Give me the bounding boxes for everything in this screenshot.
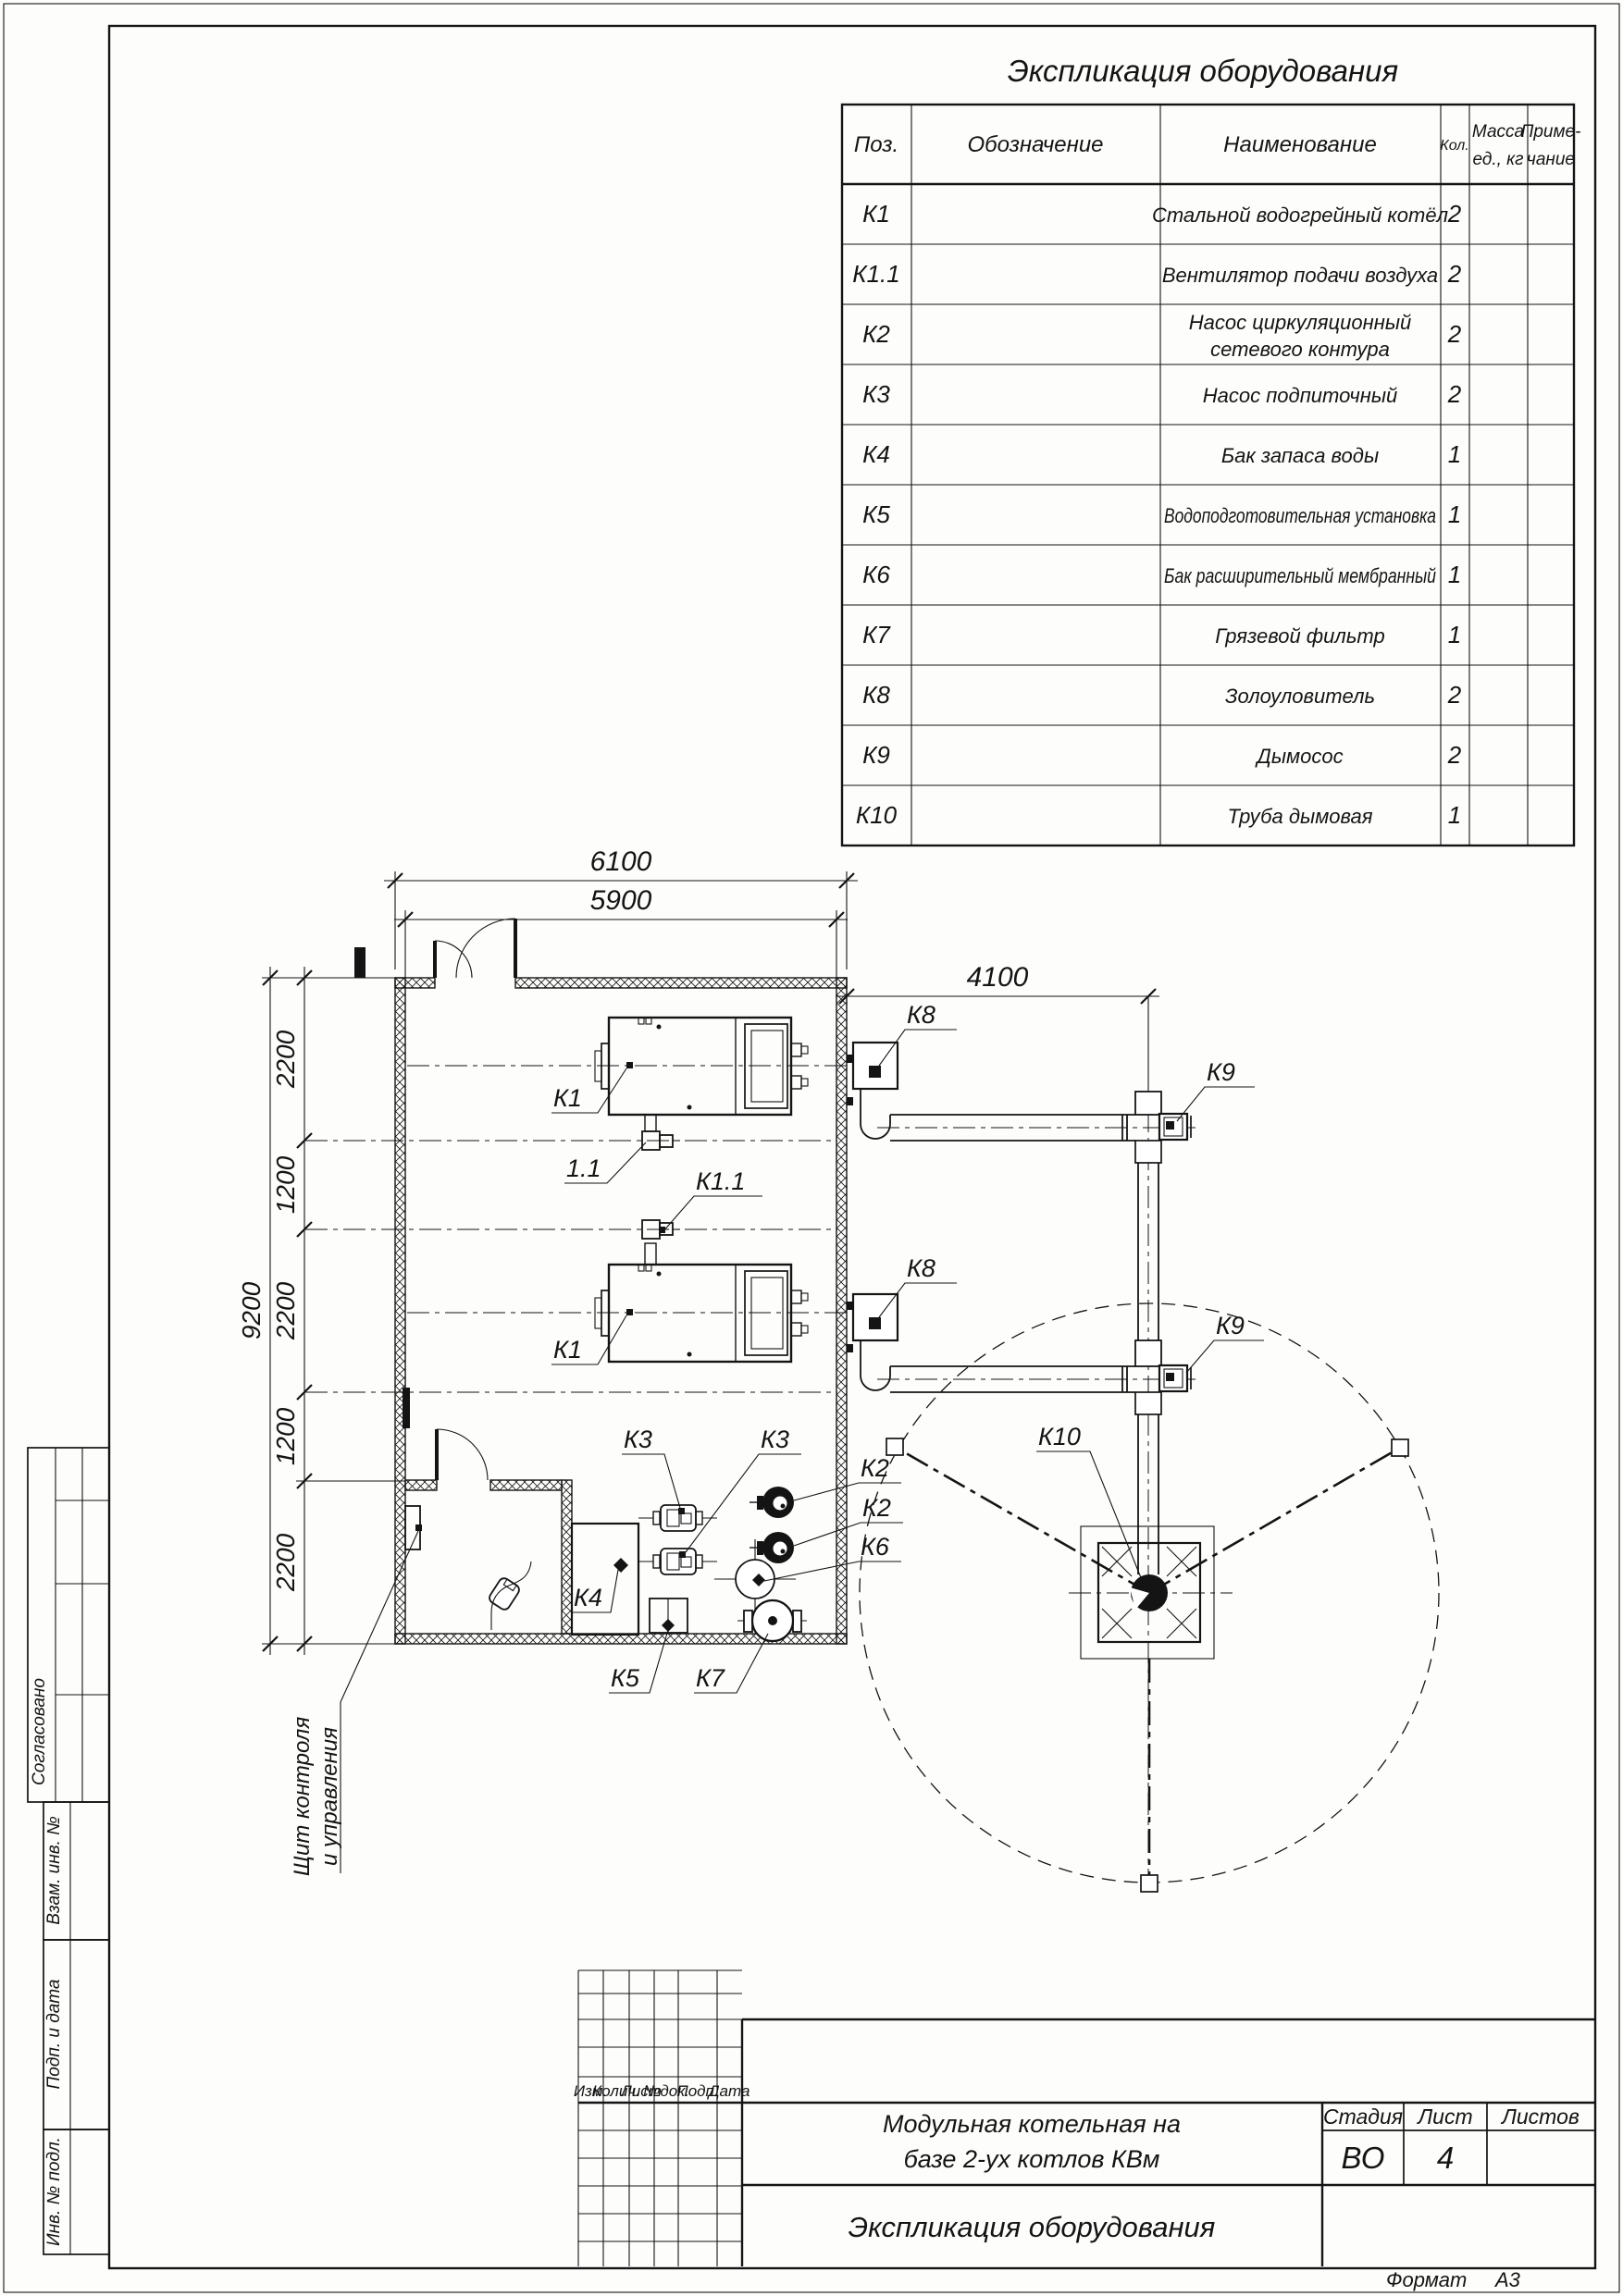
- floor-plan: Щит контроля и управления 6100 5900 4100…: [237, 846, 1439, 1892]
- col-note-2: чание: [1527, 150, 1575, 169]
- svg-text:К9: К9: [1216, 1312, 1245, 1339]
- table-row: К7Грязевой фильтр1: [862, 621, 1461, 648]
- sheets-label: Листов: [1500, 2105, 1580, 2129]
- svg-text:2: 2: [1447, 681, 1462, 709]
- left-margin-stamps: Согласовано Взам. инв. № Подп. и дата Ин…: [28, 1448, 109, 2254]
- svg-text:К8: К8: [862, 681, 890, 709]
- dim-2200-1: 2200: [271, 1030, 300, 1089]
- svg-text:1.1: 1.1: [566, 1154, 601, 1182]
- svg-text:К1: К1: [553, 1336, 582, 1364]
- format-label: Формат: [1386, 2268, 1467, 2291]
- svg-text:К9: К9: [1207, 1058, 1235, 1086]
- stage-value: ВО: [1342, 2141, 1385, 2175]
- label-k3-left: К3: [622, 1426, 680, 1508]
- svg-text:Вентилятор подачи воздуха: Вентилятор подачи воздуха: [1162, 264, 1438, 287]
- col-note-1: Приме-: [1521, 122, 1581, 142]
- agreed-stamp-label: Согласовано: [30, 1678, 49, 1785]
- control-panel-note-1: Щит контроля: [290, 1717, 315, 1876]
- svg-text:К1: К1: [553, 1084, 582, 1112]
- spec-table-title: Экспликация оборудования: [1008, 54, 1398, 88]
- svg-text:К7: К7: [862, 621, 891, 648]
- svg-text:1: 1: [1448, 561, 1461, 588]
- svg-text:2: 2: [1447, 200, 1462, 228]
- water-treatment-k5: [650, 1599, 688, 1633]
- dim-6100: 6100: [590, 846, 652, 877]
- doc-title: Экспликация оборудования: [849, 2211, 1216, 2243]
- spec-table-rows: К1Стальной водогрейный котёл2 К1.1Вентил…: [852, 200, 1462, 829]
- dim-1200-2: 1200: [271, 1407, 300, 1465]
- podp-stamp-label: Подп. и дата: [44, 1980, 64, 2090]
- col-mass-2: ед., кг: [1472, 150, 1523, 169]
- air-fan-k11-top: [642, 1115, 680, 1150]
- svg-text:2: 2: [1447, 380, 1462, 408]
- col-pos: Поз.: [854, 132, 898, 157]
- dim-2200-3: 2200: [271, 1533, 300, 1592]
- svg-text:Водоподготовительная установка: Водоподготовительная установка: [1164, 504, 1436, 527]
- label-k1-bottom: К1: [551, 1315, 626, 1364]
- svg-text:сетевого контура: сетевого контура: [1210, 338, 1390, 361]
- project-title-line2: базе 2-ух котлов КВм: [904, 2145, 1160, 2173]
- dim-4100: 4100: [967, 962, 1029, 993]
- air-fan-k11-bottom: [642, 1220, 680, 1265]
- label-k10: К10: [1036, 1423, 1144, 1585]
- dimensions: 6100 5900 4100 9200 2200 1200 2200 1200 …: [237, 846, 1159, 1655]
- format-value: А3: [1493, 2268, 1521, 2291]
- rev-data: Дата: [707, 2082, 750, 2100]
- pump-k3-top: [638, 1505, 717, 1531]
- table-row: К4Бак запаса воды1: [862, 440, 1461, 468]
- sheet-value: 4: [1437, 2141, 1454, 2175]
- inv-stamp-label: Инв. № подл.: [44, 2137, 64, 2246]
- svg-text:К8: К8: [907, 1001, 935, 1029]
- svg-text:1: 1: [1448, 801, 1461, 829]
- flue-ducts: [890, 1092, 1161, 1574]
- svg-text:К3: К3: [624, 1426, 652, 1453]
- label-k9-top: К9: [1177, 1058, 1255, 1121]
- drawing-canvas: Согласовано Взам. инв. № Подп. и дата Ин…: [0, 0, 1623, 2296]
- svg-text:К4: К4: [574, 1584, 602, 1611]
- col-designation: Обозначение: [967, 132, 1103, 157]
- svg-text:К4: К4: [862, 440, 890, 468]
- table-row: К6Бак расширительный мембранный1: [862, 561, 1461, 588]
- svg-text:К1.1: К1.1: [852, 260, 899, 288]
- svg-text:К10: К10: [1038, 1423, 1081, 1450]
- svg-text:Насос циркуляционный: Насос циркуляционный: [1189, 311, 1412, 334]
- svg-text:К6: К6: [862, 561, 890, 588]
- ash-collector-k8-top: [853, 1043, 898, 1139]
- smoke-exhauster-k9-bottom: [1159, 1365, 1191, 1391]
- svg-text:К2: К2: [861, 1454, 889, 1482]
- dim-9200: 9200: [237, 1281, 266, 1339]
- svg-text:1: 1: [1448, 500, 1461, 528]
- entrance-door: [354, 919, 515, 978]
- table-row: К1.1Вентилятор подачи воздуха2: [852, 260, 1462, 288]
- svg-text:Грязевой фильтр: Грязевой фильтр: [1215, 624, 1384, 648]
- guy-anchor: [1392, 1439, 1408, 1456]
- svg-text:К1.1: К1.1: [696, 1167, 745, 1195]
- svg-text:К1: К1: [862, 200, 890, 228]
- project-title-line1: Модульная котельная на: [883, 2110, 1181, 2138]
- svg-text:Бак расширительный мембранный: Бак расширительный мембранный: [1164, 564, 1436, 587]
- pump-k2-bottom: [750, 1532, 794, 1563]
- inner-door: [403, 1388, 488, 1480]
- svg-text:К8: К8: [907, 1254, 935, 1282]
- table-row: К10Труба дымовая1: [856, 801, 1461, 829]
- svg-text:К2: К2: [862, 320, 890, 348]
- svg-text:Дымосос: Дымосос: [1254, 745, 1343, 768]
- svg-text:2: 2: [1447, 741, 1462, 769]
- dim-1200-1: 1200: [271, 1155, 300, 1214]
- svg-text:К9: К9: [862, 741, 890, 769]
- guy-anchor: [1141, 1875, 1158, 1892]
- svg-text:К2: К2: [862, 1494, 891, 1522]
- svg-text:Насос подпиточный: Насос подпиточный: [1203, 384, 1398, 407]
- svg-text:2: 2: [1447, 260, 1462, 288]
- table-row: К5Водоподготовительная установка1: [862, 500, 1461, 528]
- sink: [488, 1562, 531, 1630]
- svg-text:К5: К5: [862, 500, 890, 528]
- label-k11: К1.1: [663, 1167, 762, 1232]
- svg-text:К6: К6: [861, 1533, 890, 1561]
- label-11: 1.1: [564, 1142, 646, 1183]
- dim-5900: 5900: [590, 885, 652, 916]
- stage-label: Стадия: [1323, 2105, 1403, 2129]
- svg-text:К5: К5: [611, 1664, 640, 1692]
- spec-table-header: Поз. Обозначение Наименование Кол. Масса…: [854, 122, 1581, 169]
- sheet-label: Лист: [1416, 2105, 1472, 2129]
- svg-text:К3: К3: [761, 1426, 789, 1453]
- svg-text:К3: К3: [862, 380, 890, 408]
- svg-text:Золоуловитель: Золоуловитель: [1225, 685, 1375, 708]
- revision-header-row: Изм. Колич. Лист №док. Подп. Дата: [574, 2082, 750, 2100]
- label-k4: К4: [572, 1570, 618, 1612]
- spec-table: Экспликация оборудования Поз. Обозначени…: [842, 54, 1580, 846]
- title-block: Изм. Колич. Лист №док. Подп. Дата Модуль…: [574, 1970, 1594, 2291]
- guy-anchor: [886, 1438, 903, 1455]
- table-row: К2Насос циркуляционныйсетевого контура2: [862, 311, 1462, 361]
- svg-text:Бак запаса воды: Бак запаса воды: [1221, 444, 1379, 467]
- table-row: К8Золоуловитель2: [862, 681, 1462, 709]
- drawing-sheet: Согласовано Взам. инв. № Подп. и дата Ин…: [0, 0, 1623, 2296]
- svg-text:Труба дымовая: Труба дымовая: [1227, 805, 1372, 828]
- label-k1-top: К1: [551, 1068, 626, 1113]
- pump-k3-bottom: [638, 1549, 717, 1574]
- vzam-stamp-label: Взам. инв. №: [44, 1816, 64, 1925]
- table-row: К9Дымосос2: [862, 741, 1462, 769]
- svg-text:1: 1: [1448, 621, 1461, 648]
- label-k9-bottom: К9: [1186, 1312, 1264, 1373]
- col-qty: Кол.: [1440, 138, 1468, 154]
- smoke-exhauster-k9-top: [1159, 1114, 1191, 1140]
- water-tank-k4: [572, 1524, 638, 1635]
- col-name: Наименование: [1223, 132, 1377, 157]
- svg-text:К7: К7: [696, 1664, 725, 1692]
- svg-text:Стальной водогрейный котёл: Стальной водогрейный котёл: [1152, 204, 1448, 227]
- table-row: К1Стальной водогрейный котёл2: [862, 200, 1462, 228]
- table-row: К3Насос подпиточный2: [862, 380, 1462, 408]
- svg-text:К10: К10: [856, 801, 898, 829]
- pump-k2-top: [750, 1487, 794, 1518]
- svg-text:1: 1: [1448, 440, 1461, 468]
- ash-collector-k8-bottom: [853, 1294, 898, 1390]
- col-mass-1: Масса: [1472, 122, 1524, 142]
- svg-text:2: 2: [1447, 320, 1462, 348]
- control-panel-note-2: и управления: [317, 1727, 342, 1866]
- dim-2200-2: 2200: [271, 1281, 300, 1340]
